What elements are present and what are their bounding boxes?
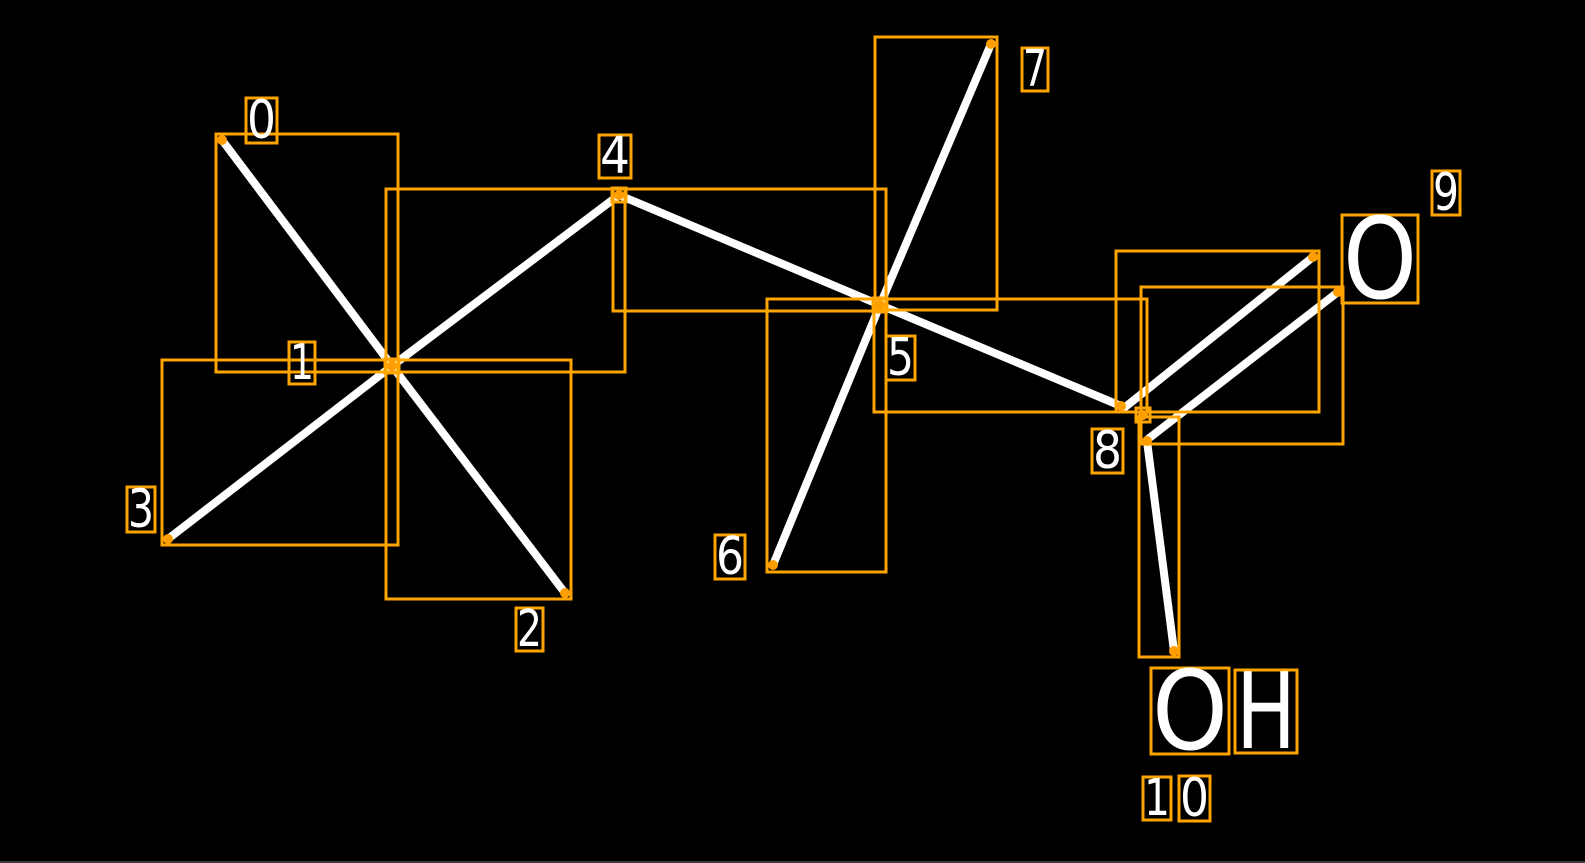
bond-endpoint-dot: [387, 361, 397, 371]
bond-endpoint-dot: [875, 300, 885, 310]
bond-endpoint-dot: [768, 560, 778, 570]
atom-index-label-4-text: 4: [600, 127, 630, 186]
molecule-annotation-canvas: 012345678910OOH: [0, 0, 1585, 863]
molecule-diagram: 012345678910OOH: [0, 0, 1585, 863]
bond-endpoint-dot: [217, 135, 227, 145]
atom-symbol-label-10-H-text: H: [1236, 651, 1296, 773]
atom-index-label-8-text: 8: [1093, 421, 1122, 481]
atom-index-label-10-text: 1: [1144, 769, 1170, 828]
bond-endpoint-dot: [163, 534, 173, 544]
bond-endpoint-dot: [614, 190, 624, 200]
diagram-background: [0, 0, 1585, 863]
atom-index-label-0-text: 0: [247, 90, 276, 151]
atom-index-label-5-text: 5: [887, 328, 914, 388]
bond-endpoint-dot: [1138, 410, 1148, 420]
bond-endpoint-dot: [1142, 436, 1152, 446]
atom-index-label-6-text: 6: [716, 527, 744, 587]
atom-index-label-9-text: 9: [1433, 163, 1459, 223]
bond-endpoint-dot: [560, 588, 570, 598]
atom-index-label-2-text: 2: [517, 600, 542, 659]
atom-index-label-7-text: 7: [1023, 40, 1047, 99]
atom-symbol-label-9-O-text: O: [1343, 195, 1417, 325]
atom-index-label-10-text: 0: [1180, 768, 1209, 829]
atom-index-label-1-text: 1: [290, 334, 314, 391]
atom-symbol-label-10-O-text: O: [1152, 647, 1228, 775]
bond-endpoint-dot: [1308, 252, 1318, 262]
bond-endpoint-dot: [986, 39, 996, 49]
bond-endpoint-dot: [1116, 401, 1126, 411]
atom-index-label-3-text: 3: [128, 479, 154, 540]
